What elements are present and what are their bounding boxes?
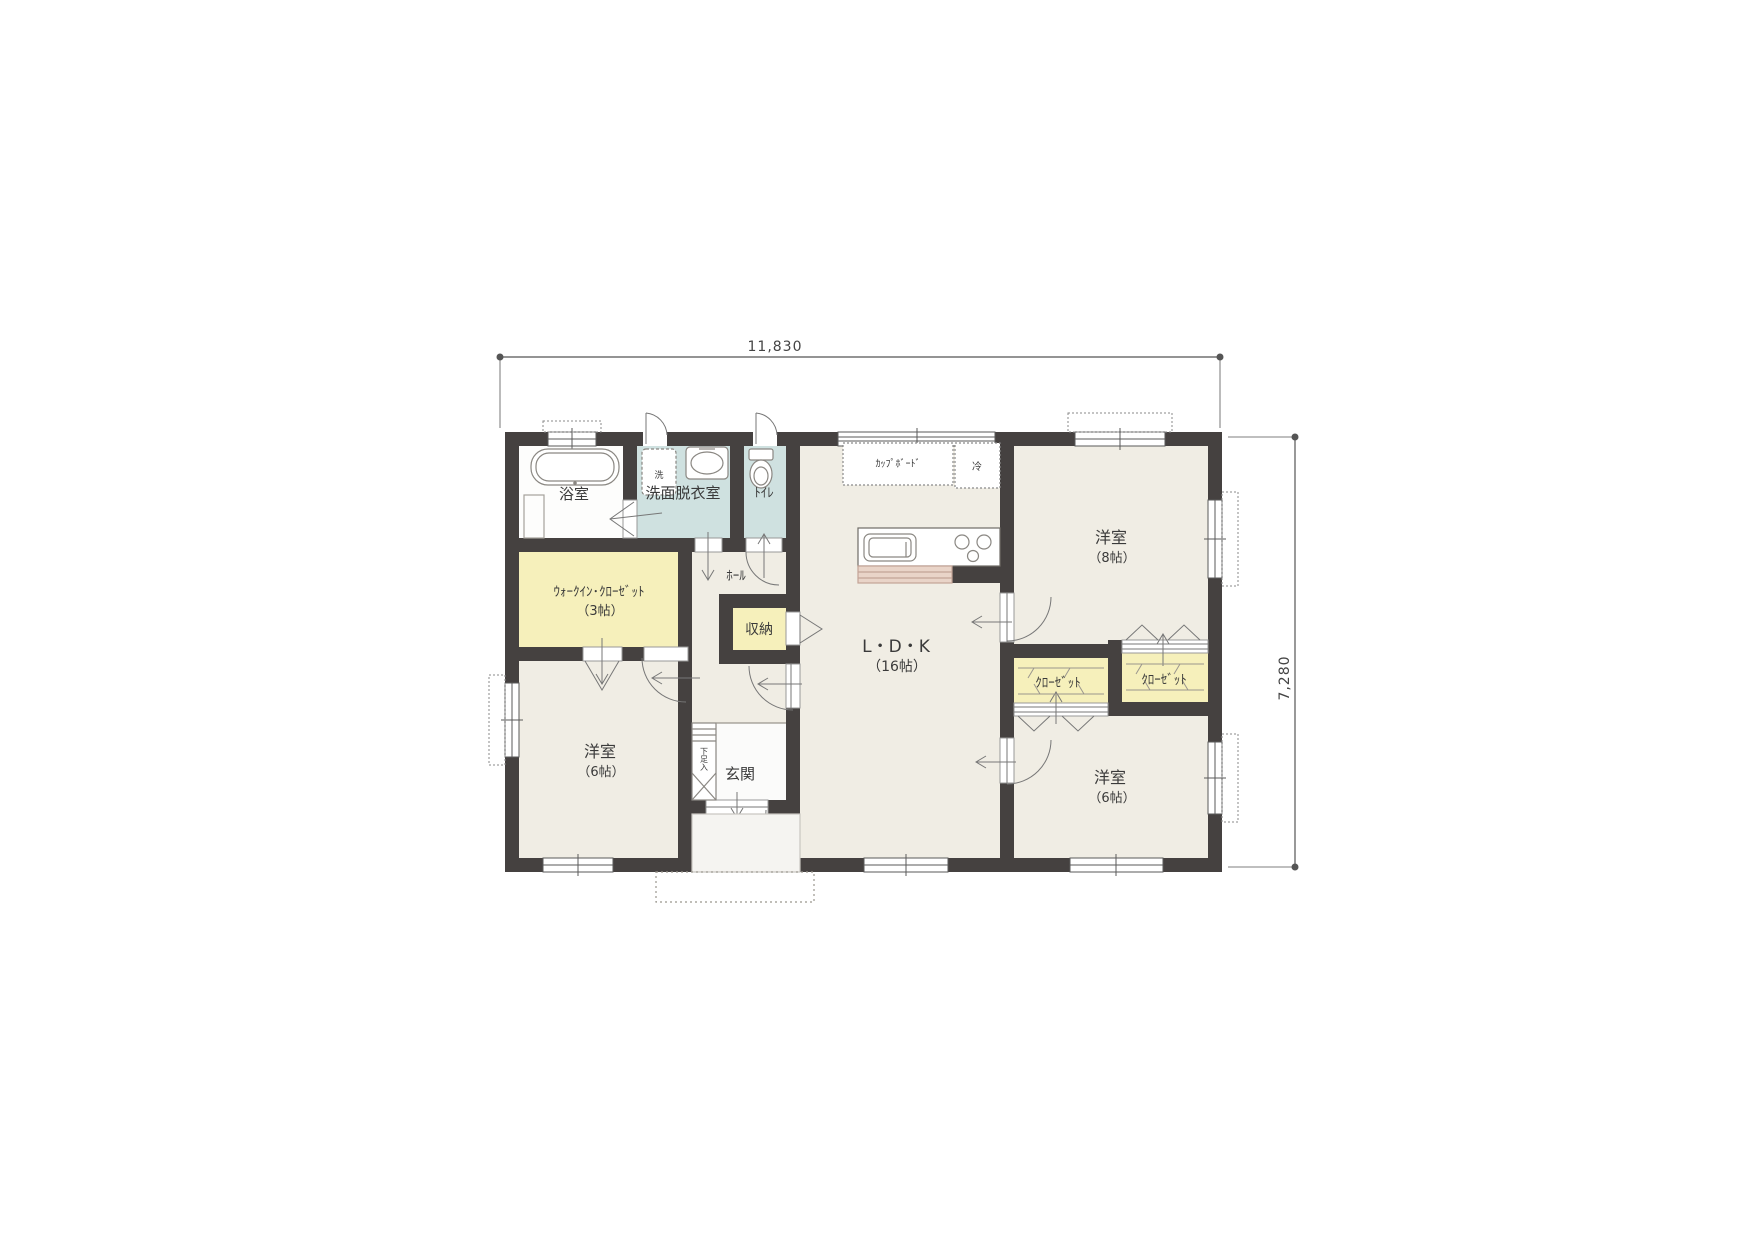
wall-ldk-east-lower [1000, 783, 1014, 872]
bedroom8-size: （8帖） [1088, 551, 1135, 566]
wall-washroom-right [730, 446, 744, 538]
fridge-label: 冷 [972, 460, 982, 473]
toilet-back-door [753, 413, 777, 446]
washer-label: 洗 [654, 469, 663, 481]
wall-ldk-east-upper [1000, 446, 1014, 593]
floor-plan-drawing: 11,830 7,280 浴室 洗面脱衣室 ﾄｲﾚ ｳｫｰｸｲﾝ･ｸﾛｰｾﾞｯﾄ… [0, 0, 1753, 1239]
wall-closet-left-top [1014, 644, 1108, 658]
bedroom6-right-size: （6帖） [1088, 791, 1135, 806]
wall-ldk-east-mid [1000, 642, 1014, 738]
wall-wet-area-bottom [505, 538, 786, 552]
shoe-cabinet-label: 下足入 [700, 747, 709, 771]
closet-right-label: ｸﾛｰｾﾞｯﾄ [1141, 673, 1187, 688]
dimension-top [497, 354, 1224, 429]
entrance-label: 玄関 [725, 765, 755, 783]
wall-wic-right [678, 538, 692, 661]
wall-storage-bottom [719, 650, 786, 664]
bedroom8-label: 洋室 [1095, 528, 1127, 547]
wall-bedroom6l-right [678, 661, 692, 872]
bedroom6r-right-window [1204, 734, 1238, 822]
wall-hall-ldk-mid [786, 645, 800, 664]
wic-label: ｳｫｰｸｲﾝ･ｸﾛｰｾﾞｯﾄ [554, 585, 645, 600]
bedroom8-top-window [1068, 413, 1172, 450]
floor-plan-page: 11,830 7,280 浴室 洗面脱衣室 ﾄｲﾚ ｳｫｰｸｲﾝ･ｸﾛｰｾﾞｯﾄ… [0, 0, 1753, 1239]
closet-left-label: ｸﾛｰｾﾞｯﾄ [1035, 676, 1081, 691]
bath-label: 浴室 [559, 485, 589, 503]
bedroom8-right-window [1204, 492, 1238, 586]
wall-closet-right-bottom [1122, 702, 1208, 716]
toilet-label: ﾄｲﾚ [754, 486, 774, 501]
wall-storage-top [733, 594, 786, 608]
bedroom6-left-size: （6帖） [577, 765, 624, 780]
bath-window [543, 421, 601, 450]
ldk-label: L・D・K [862, 637, 931, 657]
wall-kitchen-stub [952, 566, 1000, 583]
wic-size: （3帖） [576, 604, 623, 619]
ldk-size: （16帖） [867, 659, 927, 675]
washroom-label: 洗面脱衣室 [645, 484, 720, 502]
cupboard-label: ｶｯﾌﾟﾎﾞｰﾄﾞ [876, 458, 921, 470]
vanity-sink [686, 447, 728, 479]
wall-hall-ldk-upper [786, 446, 800, 612]
dimension-width-label: 11,830 [748, 339, 803, 355]
bedroom6-right-label: 洋室 [1094, 768, 1126, 787]
storage-label: 収納 [745, 622, 773, 638]
dimension-right [1228, 434, 1299, 871]
hall-label: ﾎｰﾙ [726, 569, 746, 584]
bedroom6l-left-window [489, 675, 523, 765]
bedroom6-left-label: 洋室 [584, 742, 616, 761]
wall-closet-middle [1108, 640, 1122, 716]
dimension-height-label: 7,280 [1277, 655, 1293, 700]
washroom-back-door [643, 413, 667, 446]
toilet-fixture [749, 449, 773, 488]
